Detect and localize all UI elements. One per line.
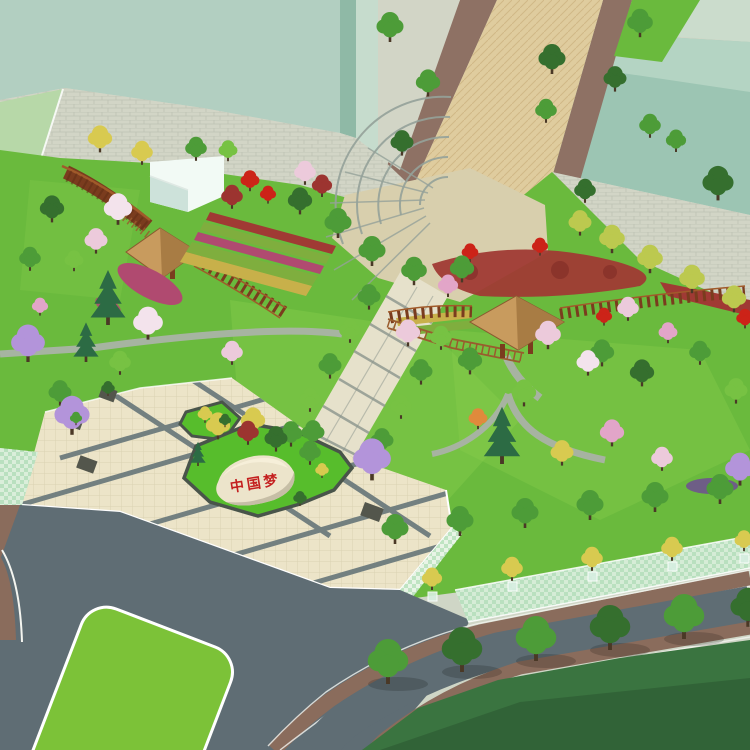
park-aerial-rendering-image: 中国梦 (0, 0, 750, 750)
landscape-rendering: 中国梦 (0, 0, 750, 750)
